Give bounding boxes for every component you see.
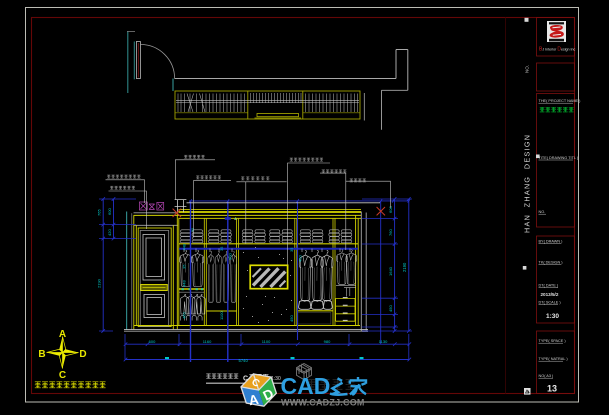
svg-text:TYPE( NATRAL ): TYPE( NATRAL ) — [539, 357, 569, 361]
svg-text:1100: 1100 — [262, 339, 271, 344]
svg-text:TYPE( SPACE ): TYPE( SPACE ) — [539, 339, 567, 343]
svg-text:448: 448 — [182, 280, 187, 287]
svg-text:450: 450 — [298, 255, 303, 262]
svg-text:HAN ZHANG DESIGN: HAN ZHANG DESIGN — [523, 134, 532, 233]
svg-text:NO.: NO. — [539, 210, 546, 214]
svg-text:2013/5/2: 2013/5/2 — [541, 292, 559, 297]
svg-text:NO.: NO. — [525, 65, 530, 73]
svg-text:448: 448 — [182, 243, 187, 250]
svg-text:35: 35 — [182, 264, 187, 269]
svg-text:600: 600 — [107, 208, 112, 215]
svg-text:450: 450 — [388, 305, 393, 312]
svg-text:TK( DESIGN ): TK( DESIGN ) — [539, 261, 564, 265]
svg-text:B: B — [38, 349, 45, 360]
svg-text:1160: 1160 — [203, 339, 212, 344]
svg-text:420: 420 — [107, 229, 112, 236]
svg-text:35: 35 — [219, 246, 224, 251]
svg-text:1130: 1130 — [379, 339, 388, 344]
svg-text:450: 450 — [182, 312, 187, 319]
svg-text:DT( DATE ): DT( DATE ) — [539, 284, 559, 288]
svg-text:TITE( DRAWING TITL ): TITE( DRAWING TITL ) — [539, 156, 579, 160]
svg-text:DT( SCALE ): DT( SCALE ) — [539, 301, 562, 305]
svg-text:980: 980 — [324, 339, 331, 344]
svg-text:D: D — [79, 349, 86, 360]
svg-text:1:30: 1:30 — [546, 313, 559, 320]
svg-text:765: 765 — [97, 209, 102, 216]
svg-text:A: A — [59, 329, 66, 340]
svg-text:WWW.CADZJ.COM: WWW.CADZJ.COM — [281, 398, 365, 408]
svg-text:C: C — [59, 370, 66, 381]
svg-text:760: 760 — [388, 229, 393, 236]
svg-text:BY( DRAWN ): BY( DRAWN ) — [539, 240, 564, 244]
svg-text:2190: 2190 — [97, 278, 102, 288]
svg-text:600: 600 — [149, 339, 156, 344]
svg-text:CAD: CAD — [281, 373, 331, 399]
svg-text:450: 450 — [289, 315, 294, 322]
svg-text:NO( A3 ): NO( A3 ) — [539, 374, 555, 378]
svg-text:13: 13 — [547, 384, 557, 394]
svg-text:1100: 1100 — [219, 311, 224, 320]
svg-text:THE( PROJECT NAME ): THE( PROJECT NAME ) — [539, 99, 582, 103]
svg-text:30: 30 — [191, 228, 195, 232]
svg-text:5740: 5740 — [239, 358, 249, 363]
svg-text:2190: 2190 — [402, 262, 407, 272]
svg-text:1640: 1640 — [388, 266, 393, 276]
svg-text:900: 900 — [228, 253, 233, 260]
svg-text:35: 35 — [289, 247, 294, 252]
